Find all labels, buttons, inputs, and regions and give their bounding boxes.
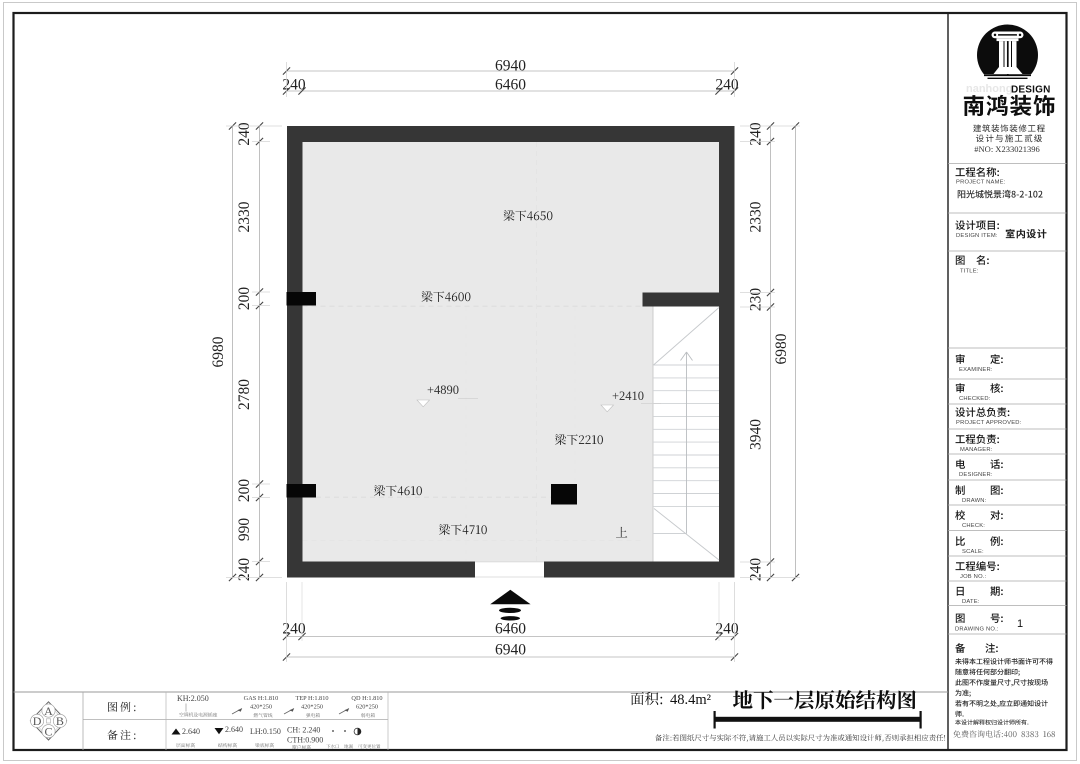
svg-text:620*250: 620*250 [356,704,378,711]
svg-text:DESIGNER:: DESIGNER: [959,472,993,478]
svg-text:EXAMINER:: EXAMINER: [959,367,993,373]
svg-text:2.640: 2.640 [182,727,200,736]
svg-text:CH: 2.240: CH: 2.240 [287,726,320,735]
svg-text:230: 230 [748,288,765,312]
svg-text:D: D [33,714,42,728]
svg-text:2780: 2780 [236,379,253,410]
svg-text:B: B [56,714,64,728]
svg-text:48.4m²: 48.4m² [670,692,712,708]
svg-text:420*250: 420*250 [301,704,323,711]
svg-text:CHECKED:: CHECKED: [959,396,991,402]
svg-text:TEP H:1.810: TEP H:1.810 [295,695,328,702]
svg-text:KH:2.050: KH:2.050 [177,694,209,703]
svg-text:990: 990 [236,518,253,542]
svg-text:+4890: +4890 [427,383,459,397]
svg-text:240: 240 [715,77,739,94]
svg-text:+2410: +2410 [612,389,644,403]
svg-text:1: 1 [1017,618,1023,630]
svg-text:JOB NO.:: JOB NO.: [960,574,987,580]
svg-text:MANAGER:: MANAGER: [960,447,993,453]
svg-text:QD H:1.810: QD H:1.810 [351,695,382,702]
svg-text:LH:0.150: LH:0.150 [250,727,281,736]
svg-text:DRAWING NO.:: DRAWING NO.: [955,627,999,633]
svg-text:GAS H:1.810: GAS H:1.810 [244,695,279,702]
svg-text:CHECK:: CHECK: [962,523,985,529]
svg-text:6940: 6940 [495,58,526,75]
svg-text:420*250: 420*250 [250,704,272,711]
svg-text:#NO: X233021396: #NO: X233021396 [974,144,1039,154]
svg-text:DATE:: DATE: [962,599,980,605]
svg-text:6460: 6460 [495,621,526,638]
svg-text:2330: 2330 [236,201,253,232]
svg-text:DESIGN ITEM:: DESIGN ITEM: [956,233,998,239]
svg-text:6460: 6460 [495,77,526,94]
svg-text:200: 200 [236,479,253,503]
svg-text:3940: 3940 [748,419,765,450]
svg-text:6940: 6940 [495,642,526,659]
svg-text:PROJECT NAME:: PROJECT NAME: [956,180,1006,186]
svg-text:2.640: 2.640 [225,725,243,734]
svg-text:nanhong: nanhong [966,83,1012,95]
svg-text:6980: 6980 [210,336,227,367]
svg-text:2330: 2330 [748,201,765,232]
svg-text:200: 200 [236,287,253,311]
svg-text:A: A [44,704,53,718]
svg-text:240: 240 [282,77,306,94]
svg-text:C: C [44,725,52,739]
svg-text:TITLE:: TITLE: [960,269,979,275]
svg-text:PROJECT APPROVED:: PROJECT APPROVED: [956,420,1022,426]
svg-text:DESIGN: DESIGN [1011,85,1051,96]
svg-text:DRAWN:: DRAWN: [962,498,987,504]
svg-text:6980: 6980 [773,333,790,364]
svg-text:CTH:0.900: CTH:0.900 [287,736,323,745]
svg-text:SCALE:: SCALE: [962,549,984,555]
